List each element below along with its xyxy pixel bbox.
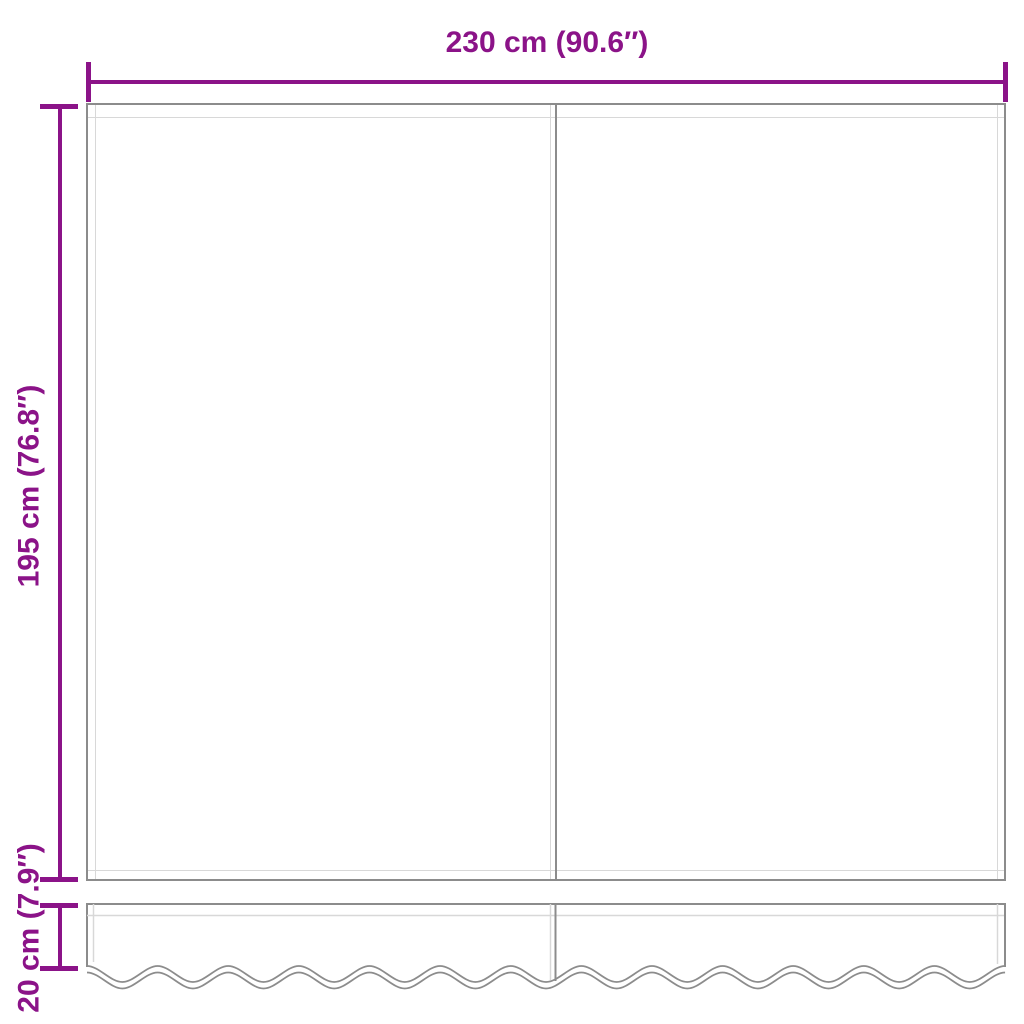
- valance-svg: [80, 898, 1010, 1003]
- width-dimension-tick-right: [1003, 62, 1008, 102]
- valance-dimension-line: [58, 906, 62, 968]
- width-dimension-label: 230 cm (90.6″): [88, 26, 1006, 59]
- valance-dimension-label: 20 cm (7.9″): [13, 843, 46, 1012]
- valance-wave-upper: [87, 966, 1005, 982]
- fabric-seam-left: [95, 105, 96, 879]
- height-dimension-label: 195 cm (76.8″): [13, 385, 46, 588]
- fabric-seam-right: [997, 105, 998, 879]
- height-dimension-tick-top: [40, 104, 78, 109]
- fabric-panel: [86, 103, 1006, 881]
- height-dimension-line: [58, 106, 62, 879]
- valance-dimension-tick-bottom: [40, 966, 78, 971]
- width-dimension-line: [88, 80, 1006, 84]
- height-dimension-tick-bottom: [40, 877, 78, 882]
- width-dimension-tick-left: [86, 62, 91, 102]
- fabric-seam-top: [88, 117, 1004, 118]
- valance-wave-lower: [87, 973, 1005, 989]
- dimension-diagram: 230 cm (90.6″) 195 cm (76.8″) 20 cm (7.9…: [0, 0, 1024, 1024]
- fabric-seam-bottom: [88, 870, 1004, 871]
- panel-divider-seam: [550, 105, 551, 879]
- panel-divider-line: [555, 105, 557, 879]
- valance-dimension-tick-top: [40, 903, 78, 908]
